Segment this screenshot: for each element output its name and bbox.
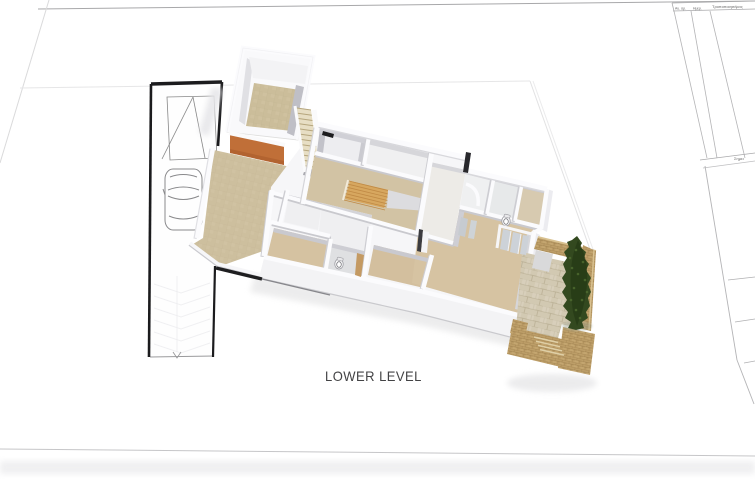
svg-text:Σημει: Σημει (734, 156, 744, 161)
svg-text:Ημερ.: Ημερ. (693, 7, 702, 11)
svg-text:Αυ. αρ.: Αυ. αρ. (675, 7, 686, 11)
svg-text:Τροποποιησ/ψεις: Τροποποιησ/ψεις (712, 4, 743, 9)
svg-text:LOWER LEVEL: LOWER LEVEL (325, 369, 422, 385)
